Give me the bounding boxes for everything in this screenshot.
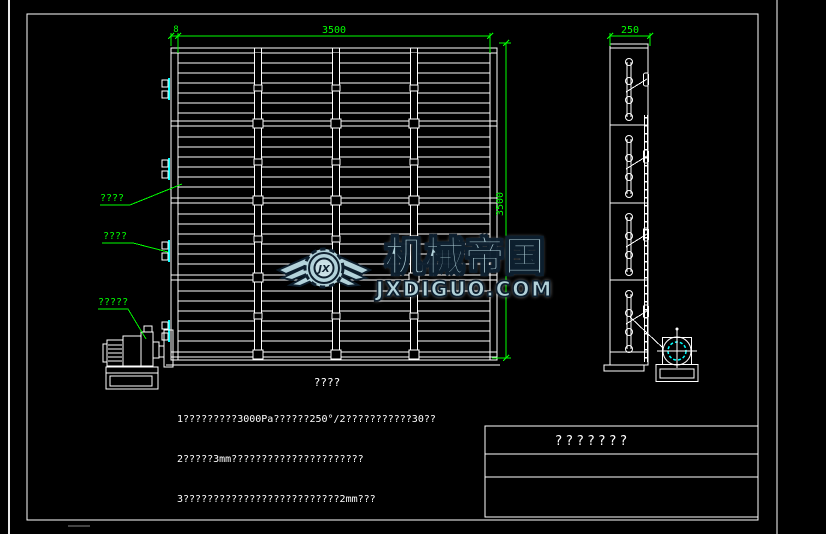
watermark: JX 机械帝国 JXDIGUO.COM <box>276 226 564 310</box>
title-block-title: ??????? <box>500 434 685 449</box>
winged-gear-icon: JX <box>276 228 372 308</box>
louver-linkage-4 <box>626 291 649 353</box>
pivot-brackets <box>162 78 169 342</box>
front-view <box>162 48 500 365</box>
drive-motor-side <box>630 317 698 382</box>
dim-side-width: 250 <box>621 25 639 36</box>
watermark-monogram: JX <box>316 264 331 275</box>
dim-front-width: 3500 <box>322 25 346 36</box>
dim-front-height: 3500 <box>495 192 506 216</box>
dimension-top-width: 8 3500 <box>168 25 493 53</box>
leader-label-3: ????? <box>98 297 128 308</box>
note-line: 2?????3mm?????????????????????? <box>177 453 436 466</box>
leader-label-2: ???? <box>103 231 127 242</box>
dim-edge-offset: 8 <box>173 25 178 35</box>
note-line: 1?????????3000Pa??????250°/2???????????3… <box>177 413 436 426</box>
louver-linkage-1 <box>626 59 649 121</box>
cad-canvas[interactable]: 8 3500 3500 250 ???? ???? ????? ???? ???… <box>0 0 826 534</box>
leader-label-1: ???? <box>100 193 124 204</box>
technical-notes: 1?????????3000Pa??????250°/2???????????3… <box>177 386 436 534</box>
dimension-side-width: 250 <box>607 25 653 46</box>
louver-linkage-3 <box>626 214 649 276</box>
watermark-domain[interactable]: JXDIGUO.COM <box>376 279 553 299</box>
dimension-front-height: 3500 <box>492 40 511 361</box>
note-line: 3??????????????????????????2mm??? <box>177 493 436 506</box>
side-view <box>604 44 649 371</box>
watermark-brand: 机械帝国 <box>385 237 545 277</box>
